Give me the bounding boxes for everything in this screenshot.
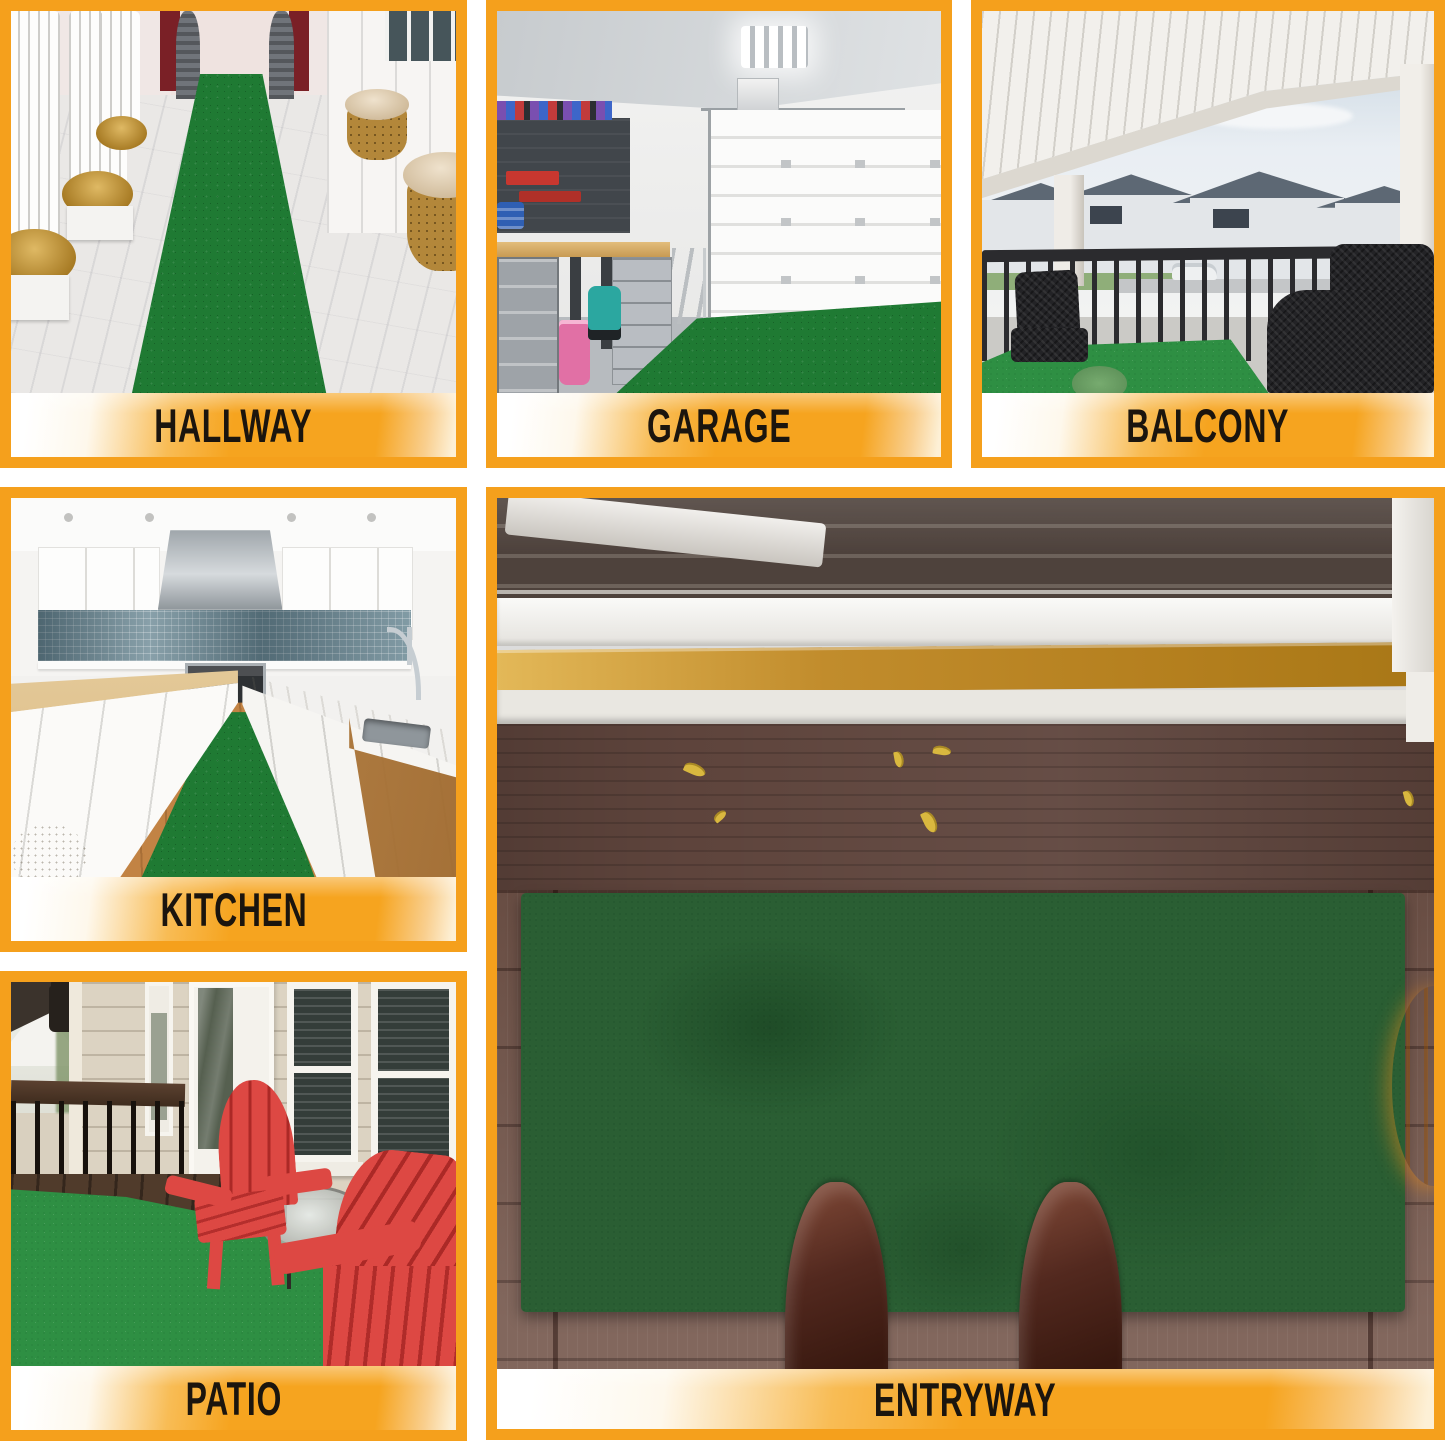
- door-jamb: [1392, 498, 1434, 672]
- panel-balcony: BALCONY: [971, 0, 1445, 468]
- red-tool-rack: [506, 171, 559, 184]
- entryway-photo: [497, 498, 1434, 1369]
- kitchen-photo: [11, 498, 456, 877]
- ceiling-light: [741, 26, 808, 68]
- patio-photo: [11, 982, 456, 1366]
- gold-threshold: [497, 642, 1434, 694]
- door-hinges: [781, 110, 791, 316]
- door-glass-panes: [385, 11, 456, 61]
- door-hinges: [930, 110, 940, 316]
- door-hinges: [855, 110, 865, 316]
- balcony-label-banner: BALCONY: [982, 393, 1434, 457]
- garage-door-opener: [737, 78, 779, 112]
- downlight: [145, 513, 154, 522]
- house-window: [1090, 206, 1122, 223]
- hallway-photo: [11, 11, 456, 393]
- faucet-spout: [407, 627, 412, 665]
- sill-lip: [497, 690, 1434, 725]
- garage-door: [708, 110, 941, 316]
- patio-label: PATIO: [185, 1375, 281, 1422]
- garage-photo: [497, 11, 941, 393]
- house-window: [1213, 209, 1249, 228]
- downlight: [287, 513, 296, 522]
- knight-statue: [176, 11, 200, 99]
- kitchen-label-banner: KITCHEN: [11, 877, 456, 941]
- kitchen-label: KITCHEN: [160, 886, 307, 933]
- door-track: [497, 590, 1434, 594]
- panel-patio: PATIO: [0, 971, 467, 1441]
- panel-garage: GARAGE: [486, 0, 952, 468]
- wicker-chair-seat: [1011, 328, 1088, 362]
- shop-vacuum: [588, 286, 621, 339]
- red-tool-rack: [519, 191, 581, 202]
- column-gold-base: [96, 116, 147, 150]
- garage-label-banner: GARAGE: [497, 393, 941, 457]
- window-sash: [294, 1066, 351, 1073]
- window-sash: [378, 1071, 449, 1078]
- column: [11, 11, 60, 248]
- balcony-label: BALCONY: [1127, 402, 1290, 449]
- door-jamb-base: [1406, 672, 1434, 742]
- balcony-photo: [982, 11, 1434, 393]
- workbench-top: [497, 242, 670, 257]
- door-sill: [497, 598, 1434, 646]
- window: [287, 982, 358, 1162]
- wicker-chair-arm: [1267, 290, 1434, 393]
- green-doormat: [521, 893, 1405, 1313]
- column-plinth: [11, 275, 69, 321]
- panel-hallway: HALLWAY: [0, 0, 467, 468]
- garage-label: GARAGE: [647, 402, 791, 449]
- knight-statue: [269, 11, 293, 99]
- ottoman: [1072, 366, 1126, 393]
- window: [371, 982, 456, 1174]
- column: [100, 11, 140, 126]
- stool: [11, 824, 87, 877]
- entryway-label: ENTRYWAY: [874, 1376, 1056, 1423]
- deck-balusters: [11, 1101, 185, 1182]
- panel-kitchen: KITCHEN: [0, 487, 467, 952]
- entryway-label-banner: ENTRYWAY: [497, 1369, 1434, 1429]
- adirondack-chair-seat: [323, 1266, 457, 1366]
- storage-bins: [497, 101, 612, 120]
- pink-bucket: [559, 320, 590, 385]
- hallway-label-banner: HALLWAY: [11, 393, 456, 457]
- column-plinth: [67, 206, 134, 240]
- hallway-label: HALLWAY: [154, 402, 312, 449]
- cabinet: [497, 257, 559, 393]
- range-hood: [158, 530, 283, 610]
- step-ladder: [672, 248, 706, 324]
- tile-backsplash: [38, 610, 412, 661]
- porch-plank: [497, 724, 1434, 889]
- patio-label-banner: PATIO: [11, 1366, 456, 1430]
- panel-entryway: ENTRYWAY: [486, 487, 1445, 1440]
- product-collage: HALLWAY: [0, 0, 1445, 1447]
- blue-rolls: [497, 202, 524, 229]
- stool-cushion: [345, 89, 410, 120]
